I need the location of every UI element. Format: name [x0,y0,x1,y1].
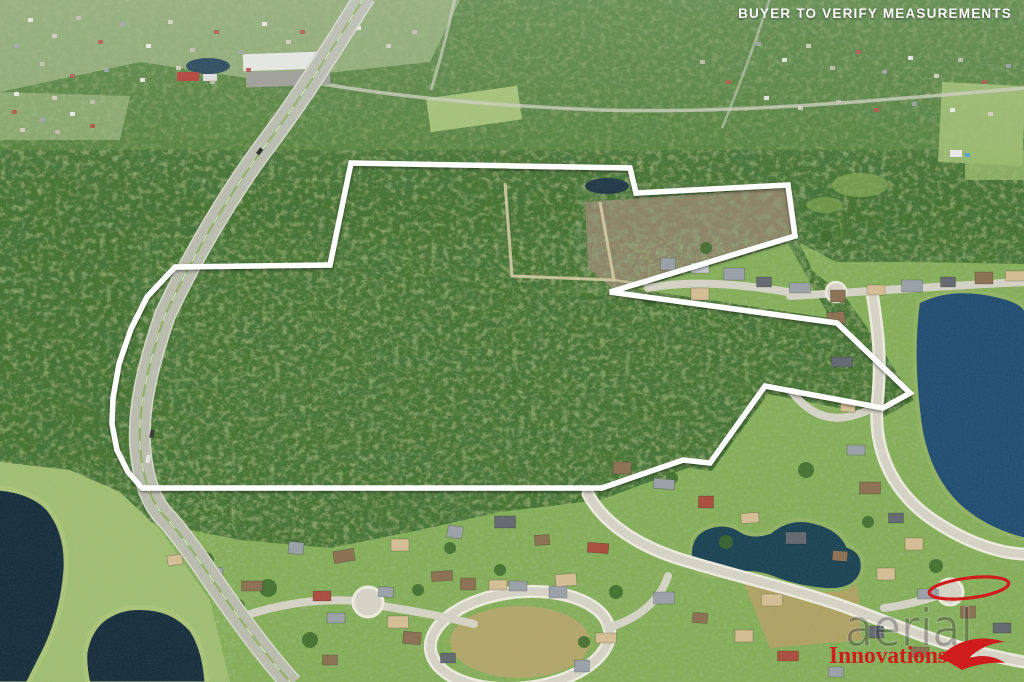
watermark-sub: Innovations [829,643,947,669]
disclaimer-text: BUYER TO VERIFY MEASUREMENTS [738,6,1012,21]
aerial-photo: BUYER TO VERIFY MEASUREMENTS aerial Inno… [0,0,1024,682]
watermark-logo: aerial Innovations [819,564,1024,676]
